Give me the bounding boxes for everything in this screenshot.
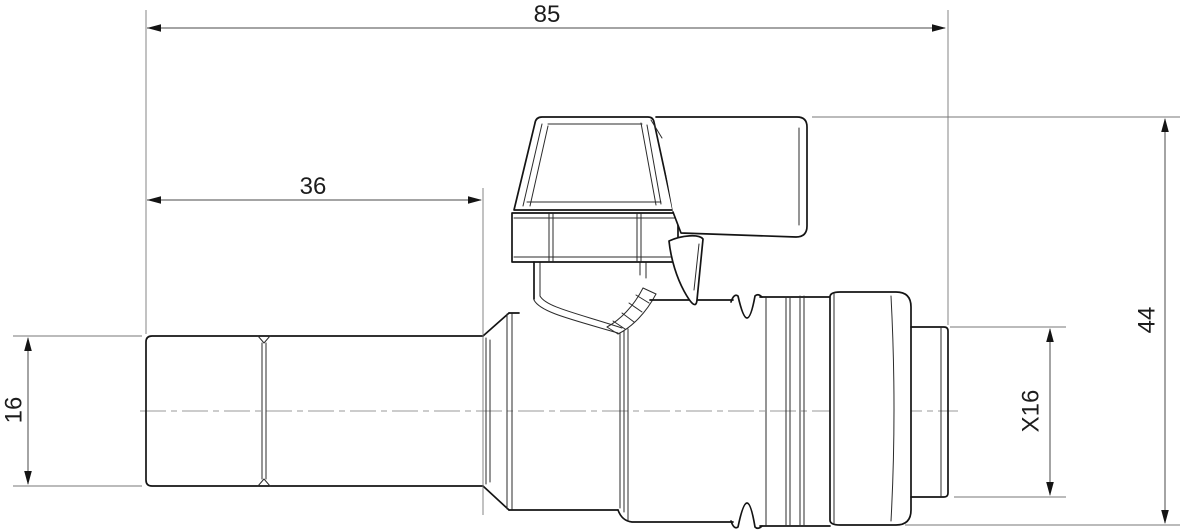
handle-tab xyxy=(669,236,703,305)
dim-outlet-diameter-label: X16 xyxy=(1018,390,1045,433)
arrowhead-top xyxy=(1046,328,1054,342)
drawing-canvas: 85 36 16 X16 xyxy=(0,0,1181,531)
arrowhead-top xyxy=(1161,118,1169,132)
dim-tail-diameter-label: 16 xyxy=(1,397,28,424)
arrowhead-right xyxy=(468,196,482,204)
dim-overall-length-label: 85 xyxy=(534,1,561,28)
arrowhead-bottom xyxy=(24,471,32,485)
pipe-groove xyxy=(258,336,270,343)
dimensions: 85 36 16 X16 xyxy=(1,1,1181,525)
arrowhead-top xyxy=(24,337,32,351)
dim-tail-length-label: 36 xyxy=(300,173,327,200)
stem-neck xyxy=(534,262,646,299)
packing-nut xyxy=(512,213,678,262)
valve-technical-drawing: 85 36 16 X16 xyxy=(0,0,1181,531)
dim-overall-height-label: 44 xyxy=(1134,307,1161,334)
handle-knob xyxy=(514,117,673,210)
dim-tail-length: 36 xyxy=(147,173,483,515)
shoulder-fillet xyxy=(534,296,622,333)
dim-tail-diameter: 16 xyxy=(1,336,143,486)
pushfit-cap xyxy=(830,292,911,525)
arrowhead-bottom xyxy=(1161,510,1169,524)
arrowhead-left xyxy=(147,24,161,32)
valve-part xyxy=(146,117,948,528)
arrowhead-right xyxy=(932,24,946,32)
stem-ribs xyxy=(607,288,656,334)
arrowhead-left xyxy=(147,196,161,204)
arrowhead-bottom xyxy=(1046,482,1054,496)
dim-outlet-diameter: X16 xyxy=(950,327,1066,497)
handle-lever xyxy=(651,117,807,237)
outlet-collet xyxy=(911,327,948,497)
